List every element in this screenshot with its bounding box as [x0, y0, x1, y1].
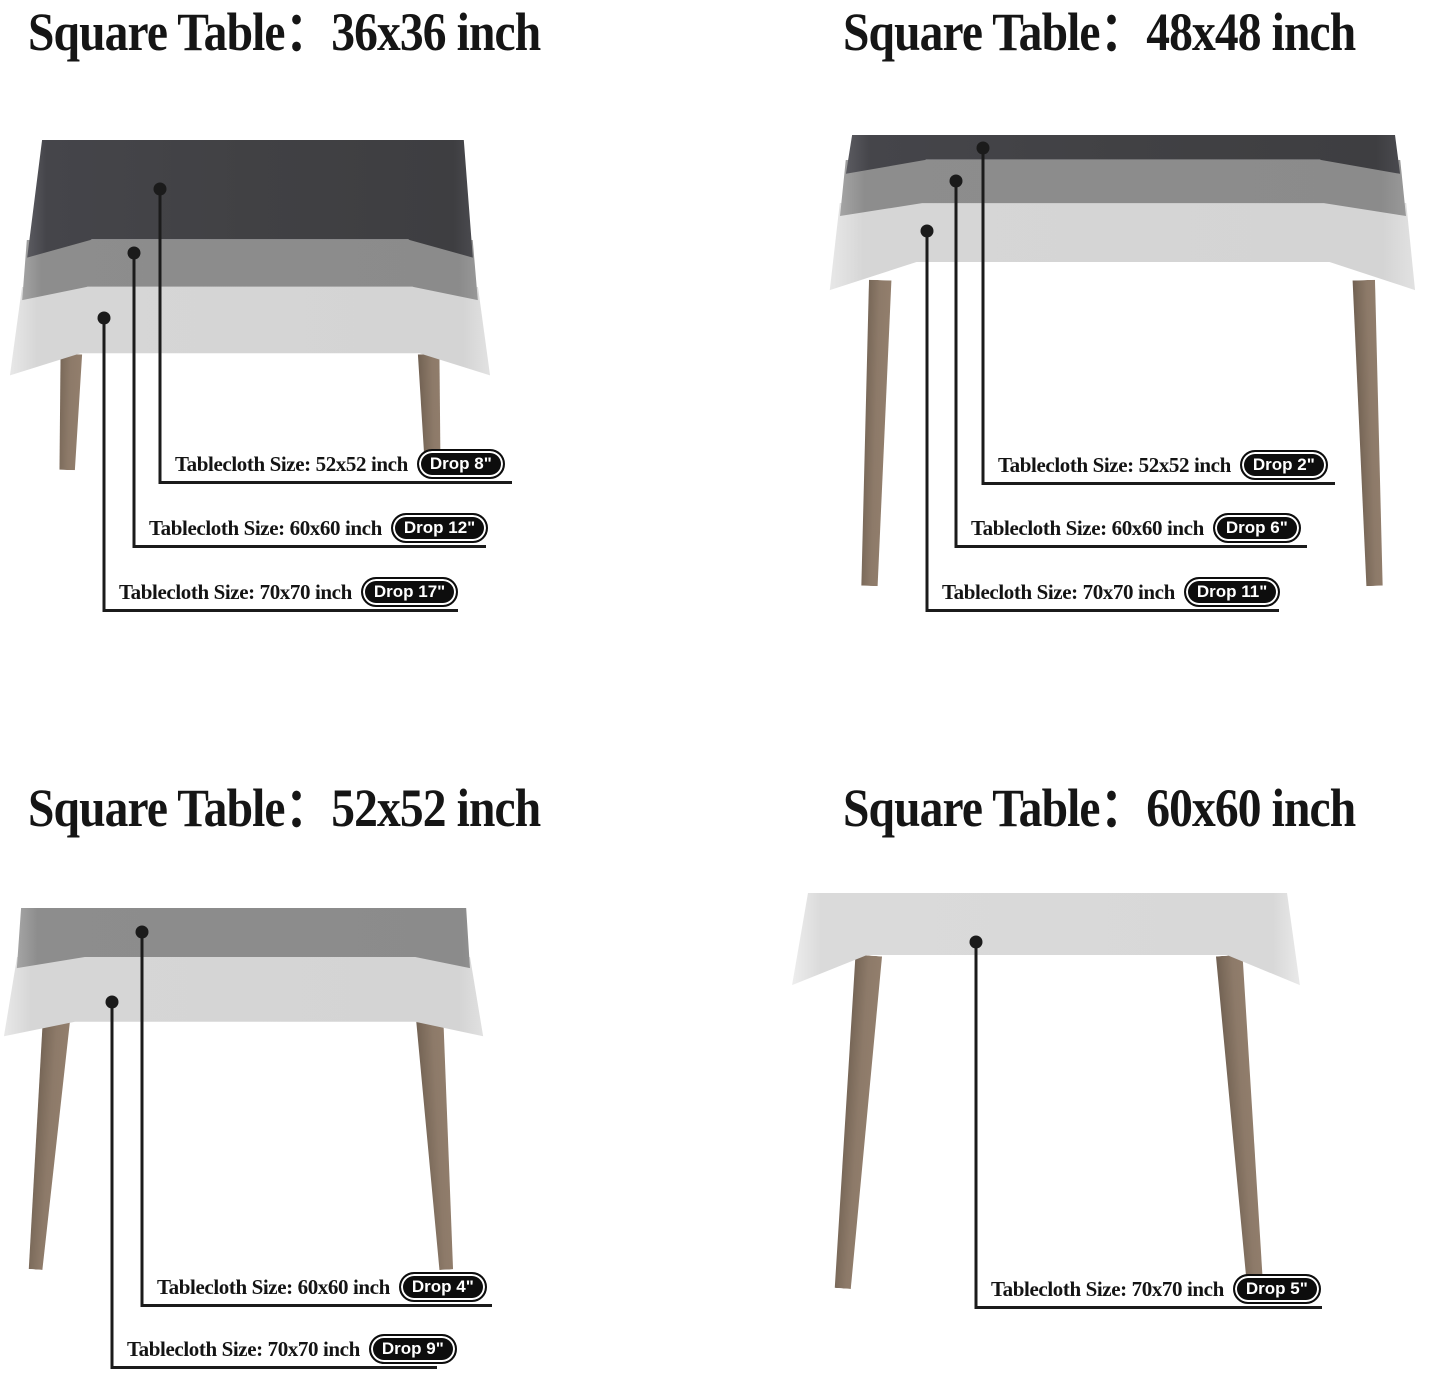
callout: Tablecloth Size: 52x52 inch Drop 2"	[982, 447, 1335, 485]
callout: Tablecloth Size: 70x70 inch Drop 5"	[975, 1271, 1322, 1309]
panel-60x60: Square Table：60x60 inch Tablecloth Size:…	[0, 0, 1445, 1374]
drop-badge: Drop 2"	[1240, 450, 1328, 480]
table-leg-right	[1214, 954, 1269, 1289]
callout-dot	[98, 312, 111, 325]
callout-line	[111, 1002, 114, 1369]
callout: Tablecloth Size: 70x70 inch Drop 9"	[111, 1331, 437, 1369]
tablecloth-size-label: Tablecloth Size: 60x60 inch	[157, 1275, 390, 1299]
callout-line	[982, 148, 985, 485]
callout: Tablecloth Size: 60x60 inch Drop 12"	[133, 510, 486, 548]
callout-line	[133, 253, 136, 548]
drop-badge: Drop 8"	[417, 449, 505, 479]
callout-line	[141, 932, 144, 1307]
tablecloth-size-label: Tablecloth Size: 60x60 inch	[149, 516, 382, 540]
drop-badge: Drop 6"	[1213, 513, 1301, 543]
drop-badge: Drop 11"	[1184, 577, 1280, 607]
page-title: Square Table：60x60 inch	[843, 776, 1355, 840]
drop-badge: Drop 5"	[1233, 1274, 1321, 1304]
callout-line	[926, 231, 929, 612]
tablecloth-size-label: Tablecloth Size: 52x52 inch	[998, 453, 1231, 477]
callout-line	[975, 942, 978, 1309]
callout-line	[103, 318, 106, 612]
callout-line	[159, 189, 162, 484]
tablecloth-size-label: Tablecloth Size: 60x60 inch	[971, 516, 1204, 540]
callout-dot	[921, 225, 934, 238]
callout-dot	[977, 142, 990, 155]
size-guide-canvas: Square Table：36x36 inch Tablecloth Size:…	[0, 0, 1445, 1374]
tablecloth-size-label: Tablecloth Size: 70x70 inch	[991, 1277, 1224, 1301]
tablecloth-size-label: Tablecloth Size: 70x70 inch	[942, 580, 1175, 604]
callout: Tablecloth Size: 52x52 inch Drop 8"	[159, 446, 512, 484]
callout: Tablecloth Size: 70x70 inch Drop 11"	[926, 574, 1279, 612]
callout-dot	[106, 996, 119, 1009]
callout-line	[955, 181, 958, 548]
drop-badge: Drop 12"	[391, 513, 488, 543]
drop-badge: Drop 9"	[369, 1334, 457, 1364]
drop-badge: Drop 17"	[361, 577, 458, 607]
table-leg-left	[828, 954, 883, 1289]
callout-dot	[154, 183, 167, 196]
drop-badge: Drop 4"	[399, 1272, 487, 1302]
callout-dot	[970, 936, 983, 949]
tablecloth-size-label: Tablecloth Size: 70x70 inch	[127, 1337, 360, 1361]
tablecloth-size-label: Tablecloth Size: 52x52 inch	[175, 452, 408, 476]
callout-dot	[128, 247, 141, 260]
callout: Tablecloth Size: 70x70 inch Drop 17"	[103, 574, 458, 612]
callout-dot	[950, 175, 963, 188]
tablecloth-size-label: Tablecloth Size: 70x70 inch	[119, 580, 352, 604]
callout-dot	[136, 926, 149, 939]
callout: Tablecloth Size: 60x60 inch Drop 6"	[955, 510, 1307, 548]
callout: Tablecloth Size: 60x60 inch Drop 4"	[141, 1269, 492, 1307]
